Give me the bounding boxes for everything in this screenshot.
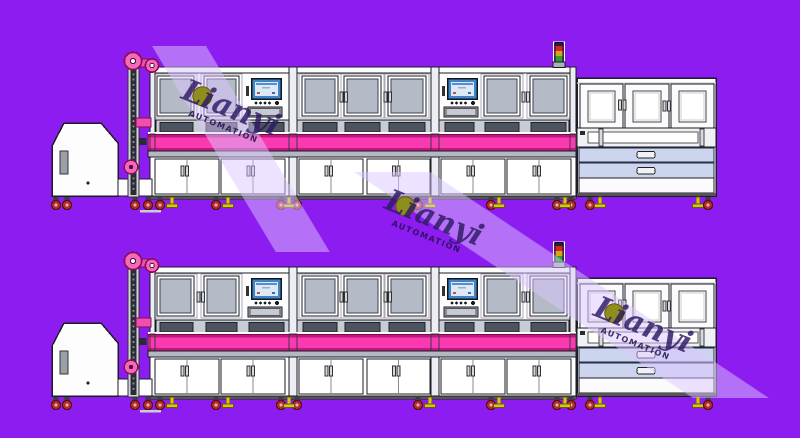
chain-link: [132, 94, 134, 96]
chain-link: [132, 320, 134, 322]
panel-button: [264, 302, 267, 305]
chain-link: [132, 325, 134, 327]
panel-button: [455, 302, 458, 305]
chain-link: [132, 89, 134, 91]
leveling-foot-pad: [693, 404, 704, 407]
offload-latch: [580, 331, 585, 335]
door-split-line: [539, 159, 540, 194]
tower-cap: [555, 43, 563, 47]
caster-hub: [55, 204, 58, 207]
caster-hub: [215, 204, 218, 207]
lower-rail-strip: [148, 151, 576, 157]
panel-button: [451, 302, 454, 305]
operator-tray-inner: [446, 309, 476, 316]
hmi-content-blue: [468, 92, 471, 94]
offload-window: [679, 91, 706, 122]
door-handle: [522, 292, 525, 302]
door-handle: [330, 366, 333, 376]
panel-button: [255, 302, 258, 305]
caster-hub: [296, 404, 299, 407]
window-glass: [391, 279, 423, 313]
leveling-foot-pad: [560, 404, 571, 407]
door-handle: [389, 292, 392, 302]
chain-link: [132, 131, 134, 133]
chain-link: [132, 383, 134, 385]
door-handle: [619, 100, 622, 110]
recess-slot: [160, 123, 193, 133]
leveling-foot-pad: [494, 404, 505, 407]
door-handle: [527, 292, 530, 302]
recess-slot: [531, 323, 566, 333]
offload-bottom-rail: [577, 193, 716, 196]
leveling-foot-stem: [170, 397, 174, 404]
door-handle: [384, 292, 387, 302]
chain-link: [132, 79, 134, 81]
recess-slot: [206, 323, 237, 333]
leveling-foot-pad: [560, 204, 571, 207]
panel-button: [464, 302, 467, 305]
window-glass: [305, 279, 335, 313]
chain-link: [132, 136, 134, 138]
elevator-sensor: [139, 338, 147, 345]
chain-link: [132, 294, 134, 296]
hopper-dot: [86, 381, 89, 384]
caster-hub: [147, 404, 150, 407]
window-glass: [160, 279, 191, 313]
panel-button: [451, 102, 454, 105]
recess-slot: [485, 323, 519, 333]
signal-tower: [553, 42, 565, 68]
chain-link: [132, 273, 134, 275]
caster-hub: [159, 204, 162, 207]
scale-dash: [140, 210, 161, 213]
hmi-content-line: [262, 287, 270, 289]
control-panel: [442, 78, 478, 117]
door-handle: [623, 100, 626, 110]
recess-slot: [445, 323, 474, 333]
door-handle: [538, 166, 541, 176]
door-handle: [340, 292, 343, 302]
recess-slot: [531, 123, 566, 133]
door-handle: [668, 101, 671, 111]
hmi-titlebar: [256, 83, 277, 85]
recess-slot: [345, 123, 380, 133]
recess-slot: [389, 323, 425, 333]
door-split-line: [187, 159, 188, 194]
panel-side-handle: [442, 286, 445, 296]
lower-rail-strip: [148, 351, 576, 357]
hopper-slot: [60, 351, 68, 374]
caster-hub: [55, 404, 58, 407]
chain-link: [132, 115, 134, 117]
chain-link: [132, 351, 134, 353]
hmi-titlebar: [256, 283, 277, 285]
leveling-foot-stem: [428, 397, 432, 404]
cad-viewport: LianyiAUTOMATIONLianyiAUTOMATIONLianyiAU…: [0, 0, 800, 438]
leveling-foot-pad: [167, 204, 178, 207]
door-handle: [247, 366, 250, 376]
door-handle: [345, 92, 348, 102]
right-offload-station: [577, 78, 716, 210]
chain-link: [132, 279, 134, 281]
door-handle: [522, 92, 525, 102]
hmi-content-red: [257, 292, 260, 294]
leveling-foot-pad: [425, 404, 436, 407]
hmi-content-line: [458, 87, 466, 89]
caster-hub: [707, 404, 710, 407]
control-panel: [246, 278, 282, 317]
window-glass: [487, 79, 517, 113]
chain-link: [132, 357, 134, 359]
window-glass: [347, 279, 378, 313]
panel-side-handle: [246, 286, 249, 296]
drawer-handle: [637, 152, 655, 159]
door-handle: [181, 166, 184, 176]
chain-link: [132, 315, 134, 317]
caster-hub: [707, 204, 710, 207]
chain-link: [132, 305, 134, 307]
chain-link: [132, 284, 134, 286]
hmi-content-blue: [272, 92, 275, 94]
caster-hub: [215, 404, 218, 407]
panel-button: [460, 102, 463, 105]
operator-tray-inner: [250, 309, 280, 316]
door-handle: [527, 92, 530, 102]
chain-link: [132, 377, 134, 379]
offload-table-panel: [588, 132, 698, 143]
leveling-foot-pad: [284, 404, 295, 407]
door-split-line: [473, 359, 474, 394]
offload-divider: [700, 329, 704, 346]
door-handle: [202, 292, 205, 302]
door-handle: [663, 301, 666, 311]
pulley-hub: [150, 63, 154, 67]
door-handle: [533, 166, 536, 176]
door-handle: [186, 166, 189, 176]
panel-button-large: [471, 101, 475, 105]
leveling-foot-stem: [226, 197, 230, 204]
door-handle: [393, 366, 396, 376]
panel-button-large: [275, 101, 279, 105]
door-handle: [181, 366, 184, 376]
chain-link: [132, 183, 134, 185]
bay-divider-post: [431, 357, 439, 396]
chain-link: [132, 388, 134, 390]
scale-dash: [140, 410, 161, 413]
drawer-handle: [637, 168, 655, 175]
main-line: [148, 267, 576, 410]
offload-latch: [580, 131, 585, 135]
leveling-foot-stem: [497, 197, 501, 204]
offload-divider: [700, 129, 704, 146]
elevator-bracket: [136, 318, 151, 327]
door-handle: [389, 92, 392, 102]
hmi-content-line: [262, 87, 270, 89]
door-handle: [330, 166, 333, 176]
hmi-content-red: [453, 292, 456, 294]
door-handle: [325, 166, 328, 176]
leveling-foot-pad: [223, 404, 234, 407]
caster-hub: [589, 404, 592, 407]
leveling-foot-stem: [563, 197, 567, 204]
leveling-foot-stem: [696, 197, 700, 204]
chain-link: [132, 157, 134, 159]
panel-button: [268, 302, 271, 305]
panel-button: [455, 102, 458, 105]
hmi-titlebar: [452, 283, 473, 285]
recess-slot: [445, 123, 474, 133]
panel-button: [464, 102, 467, 105]
door-split-line: [398, 359, 399, 394]
leveling-foot-pad: [595, 404, 606, 407]
leveling-foot-stem: [226, 397, 230, 404]
panel-button-large: [471, 301, 475, 305]
chain-link: [132, 310, 134, 312]
panel-button: [259, 302, 262, 305]
hmi-content-blue: [468, 292, 471, 294]
door-handle: [186, 366, 189, 376]
chain-link: [132, 99, 134, 101]
sprocket-hub: [129, 365, 133, 369]
chain-link: [132, 188, 134, 190]
panel-button-large: [275, 301, 279, 305]
caster-hub: [556, 204, 559, 207]
bay-divider-post: [289, 357, 297, 396]
window-glass: [347, 79, 378, 113]
leveling-foot-pad: [595, 204, 606, 207]
offload-window: [633, 91, 661, 122]
door-handle: [472, 166, 475, 176]
chain-link: [132, 146, 134, 148]
caster-hub: [66, 204, 69, 207]
signal-amber-light: [555, 51, 563, 56]
signal-red-light: [555, 46, 563, 51]
door-split-line: [331, 359, 332, 394]
hmi-content-blue: [272, 292, 275, 294]
door-handle: [663, 101, 666, 111]
caster-hub: [490, 204, 493, 207]
recess-slot: [345, 323, 380, 333]
recess-slot: [160, 323, 193, 333]
door-handle: [668, 301, 671, 311]
door-handle: [384, 92, 387, 102]
panel-button: [460, 302, 463, 305]
chain-link: [132, 105, 134, 107]
door-split-line: [539, 359, 540, 394]
caster-hub: [147, 204, 150, 207]
offload-window: [588, 91, 615, 122]
chain-link: [132, 141, 134, 143]
door-split-line: [187, 359, 188, 394]
caster-hub: [66, 404, 69, 407]
sprocket-hub: [129, 165, 133, 169]
chain-link: [132, 125, 134, 127]
leveling-foot-pad: [167, 404, 178, 407]
signal-amber-light: [555, 251, 563, 256]
offload-divider: [599, 129, 603, 146]
door-handle: [533, 366, 536, 376]
operator-tray-inner: [446, 109, 476, 116]
hmi-content-red: [257, 92, 260, 94]
door-split-line: [331, 159, 332, 194]
caster-hub: [159, 404, 162, 407]
machine-drawing-canvas: LianyiAUTOMATIONLianyiAUTOMATIONLianyiAU…: [0, 0, 800, 438]
door-handle: [397, 366, 400, 376]
leveling-foot-pad: [693, 204, 704, 207]
door-handle: [538, 366, 541, 376]
caster-hub: [280, 404, 283, 407]
window-glass: [305, 79, 335, 113]
leveling-foot-pad: [223, 204, 234, 207]
door-handle: [472, 366, 475, 376]
pulley-hub: [130, 258, 135, 263]
recess-slot: [249, 323, 284, 333]
leveling-foot-stem: [497, 397, 501, 404]
door-handle: [467, 166, 470, 176]
caster-hub: [490, 404, 493, 407]
window-glass: [533, 79, 564, 113]
chain-link: [132, 73, 134, 75]
door-handle: [340, 92, 343, 102]
signal-green-light: [555, 56, 563, 62]
caster-hub: [134, 204, 137, 207]
door-handle: [467, 366, 470, 376]
caster-hub: [589, 204, 592, 207]
leveling-foot-stem: [598, 397, 602, 404]
door-handle: [197, 292, 200, 302]
leveling-foot-stem: [170, 197, 174, 204]
chain-link: [132, 341, 134, 343]
elevator-bracket: [136, 118, 151, 127]
leveling-foot-stem: [696, 397, 700, 404]
tower-cap: [555, 243, 563, 247]
window-glass: [207, 279, 236, 313]
leveling-foot-stem: [598, 197, 602, 204]
chain-link: [132, 336, 134, 338]
chain-link: [132, 299, 134, 301]
window-glass: [391, 79, 423, 113]
chain-link: [132, 331, 134, 333]
chain-link: [132, 110, 134, 112]
hmi-content-line: [458, 287, 466, 289]
chain-link: [132, 84, 134, 86]
chain-link: [132, 120, 134, 122]
offload-bottom-band: [579, 178, 714, 193]
recess-slot: [389, 123, 425, 133]
chain-link: [132, 289, 134, 291]
pulley-hub: [130, 58, 135, 63]
offload-window: [679, 291, 706, 322]
caster-hub: [134, 404, 137, 407]
leveling-foot-stem: [287, 397, 291, 404]
door-split-line: [473, 159, 474, 194]
door-handle: [345, 292, 348, 302]
caster-hub: [556, 404, 559, 407]
pulley-hub: [150, 263, 154, 267]
panel-side-handle: [246, 86, 249, 96]
signal-red-light: [555, 246, 563, 251]
hopper-slot: [60, 151, 68, 174]
door-handle: [325, 366, 328, 376]
hmi-titlebar: [452, 83, 473, 85]
hmi-content-red: [453, 92, 456, 94]
door-split-line: [253, 359, 254, 394]
recess-slot: [303, 123, 337, 133]
tower-base: [553, 62, 565, 68]
panel-side-handle: [442, 86, 445, 96]
window-glass: [487, 279, 517, 313]
leveling-foot-stem: [563, 397, 567, 404]
control-panel: [442, 278, 478, 317]
chain-link: [132, 177, 134, 179]
recess-slot: [485, 123, 519, 133]
chain-link: [132, 346, 134, 348]
hopper-dot: [86, 181, 89, 184]
door-handle: [252, 366, 255, 376]
recess-slot: [303, 323, 337, 333]
chain-link: [132, 151, 134, 153]
leveling-foot-pad: [494, 204, 505, 207]
caster-hub: [417, 404, 420, 407]
elevator-sensor: [139, 138, 147, 145]
